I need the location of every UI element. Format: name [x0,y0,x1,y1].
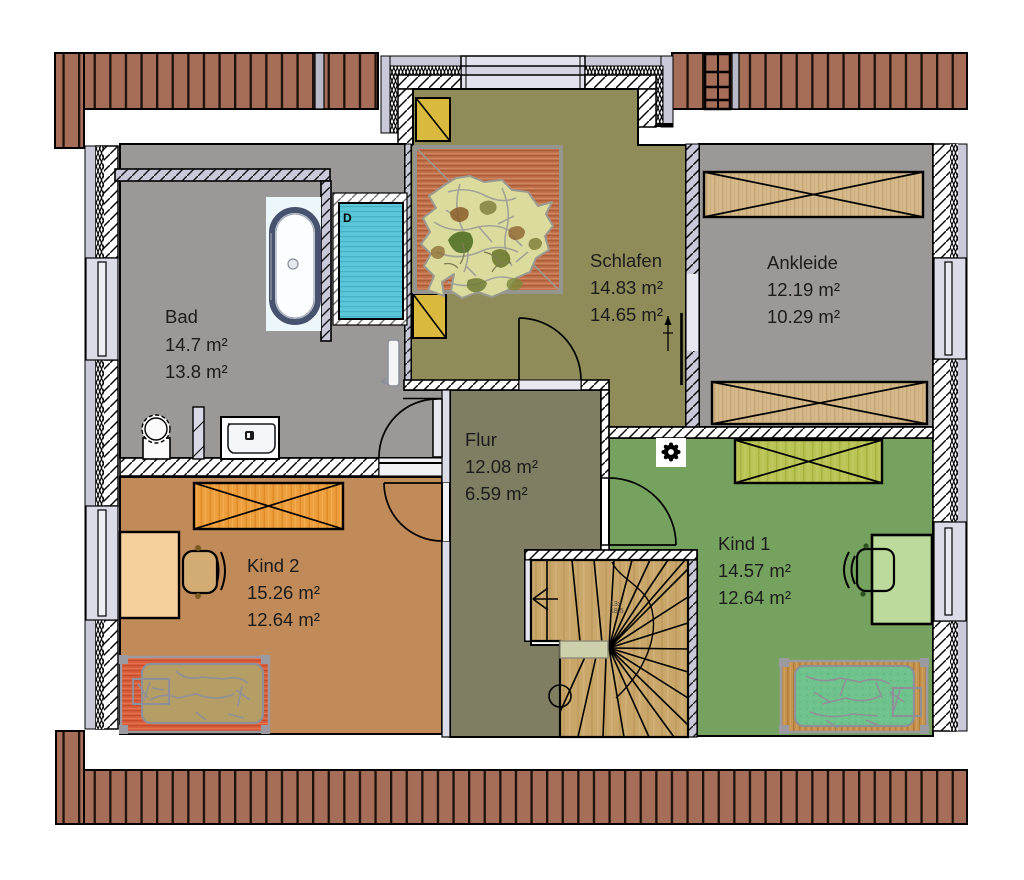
svg-text:14.65 m²: 14.65 m² [590,304,663,325]
svg-text:14.7 m²: 14.7 m² [165,334,228,355]
svg-text:12.64 m²: 12.64 m² [247,609,320,630]
svg-text:Kind 1: Kind 1 [718,533,770,554]
svg-text:Kind 2: Kind 2 [247,555,299,576]
svg-text:Ankleide: Ankleide [767,252,838,273]
svg-text:Schlafen: Schlafen [590,250,662,271]
svg-text:6.59 m²: 6.59 m² [465,483,528,504]
svg-text:Flur: Flur [465,429,497,450]
svg-text:12.19 m²: 12.19 m² [767,279,840,300]
svg-text:10.29 m²: 10.29 m² [767,306,840,327]
svg-text:14.57 m²: 14.57 m² [718,560,791,581]
svg-text:D: D [343,211,352,225]
svg-text:13.8 m²: 13.8 m² [165,361,228,382]
svg-text:18.5: 18.5 [610,608,624,615]
svg-text:Bad: Bad [165,306,198,327]
svg-text:12.08 m²: 12.08 m² [465,456,538,477]
svg-text:12.64 m²: 12.64 m² [718,587,791,608]
svg-text:13x: 13x [610,601,622,608]
svg-text:14.83 m²: 14.83 m² [590,277,663,298]
svg-text:15.26 m²: 15.26 m² [247,582,320,603]
